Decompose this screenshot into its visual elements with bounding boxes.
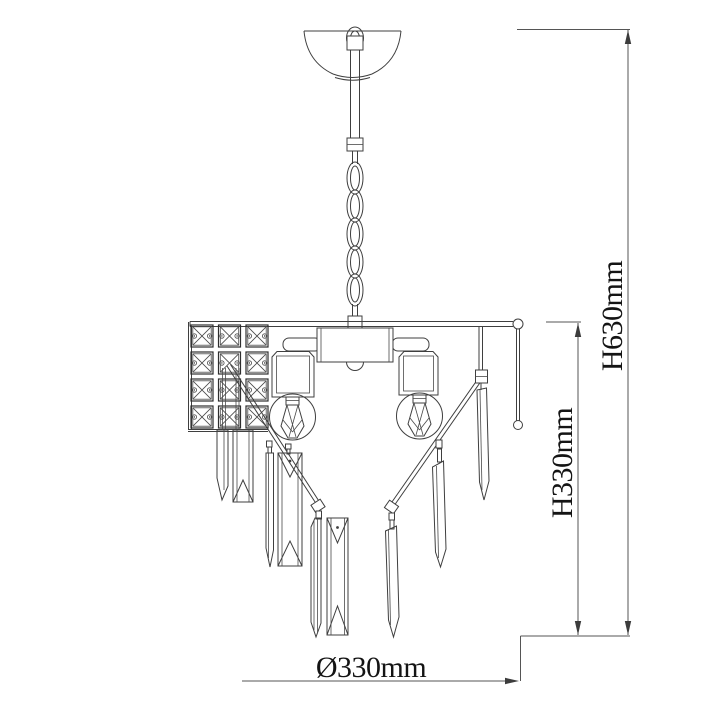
crystal-pendant-i [477, 383, 489, 500]
total-height-label: H630mm [596, 261, 629, 372]
chandelier-technical-drawing: H630mm H330mm Ø330mm [0, 0, 720, 720]
dimension-body-height: H330mm [546, 322, 581, 635]
ceiling-canopy [304, 31, 401, 80]
crystal-pendant-f [327, 518, 348, 635]
crystal-pendant-e [311, 511, 322, 637]
dimension-diameter: Ø330mm [242, 636, 630, 684]
crystal-pendant-b [233, 430, 253, 502]
crystal-pendant-d [278, 444, 302, 566]
dimension-total-height: H630mm [517, 30, 631, 636]
diameter-label: Ø330mm [316, 651, 427, 684]
drawing-canvas: H630mm H330mm Ø330mm [0, 0, 720, 720]
crystal-pendant-c [266, 441, 274, 567]
crystal-pendant-h [386, 513, 400, 637]
crystal-pendant-g [433, 440, 447, 567]
left-bulb [270, 394, 316, 440]
chain [347, 162, 363, 329]
central-hub [317, 328, 393, 371]
crystal-grid-panel [188, 322, 268, 432]
right-lamp-shade [399, 352, 438, 396]
right-bulb [397, 393, 443, 439]
right-arm-joint [476, 370, 488, 383]
body-height-label: H330mm [546, 408, 579, 519]
left-arm-bracket [283, 338, 321, 351]
right-arm-bracket [392, 338, 429, 351]
suspension-stem [347, 50, 363, 164]
left-lamp-shade [272, 352, 314, 398]
left-diagonal-arm [227, 365, 325, 513]
crystal-pendant-a [217, 430, 228, 500]
